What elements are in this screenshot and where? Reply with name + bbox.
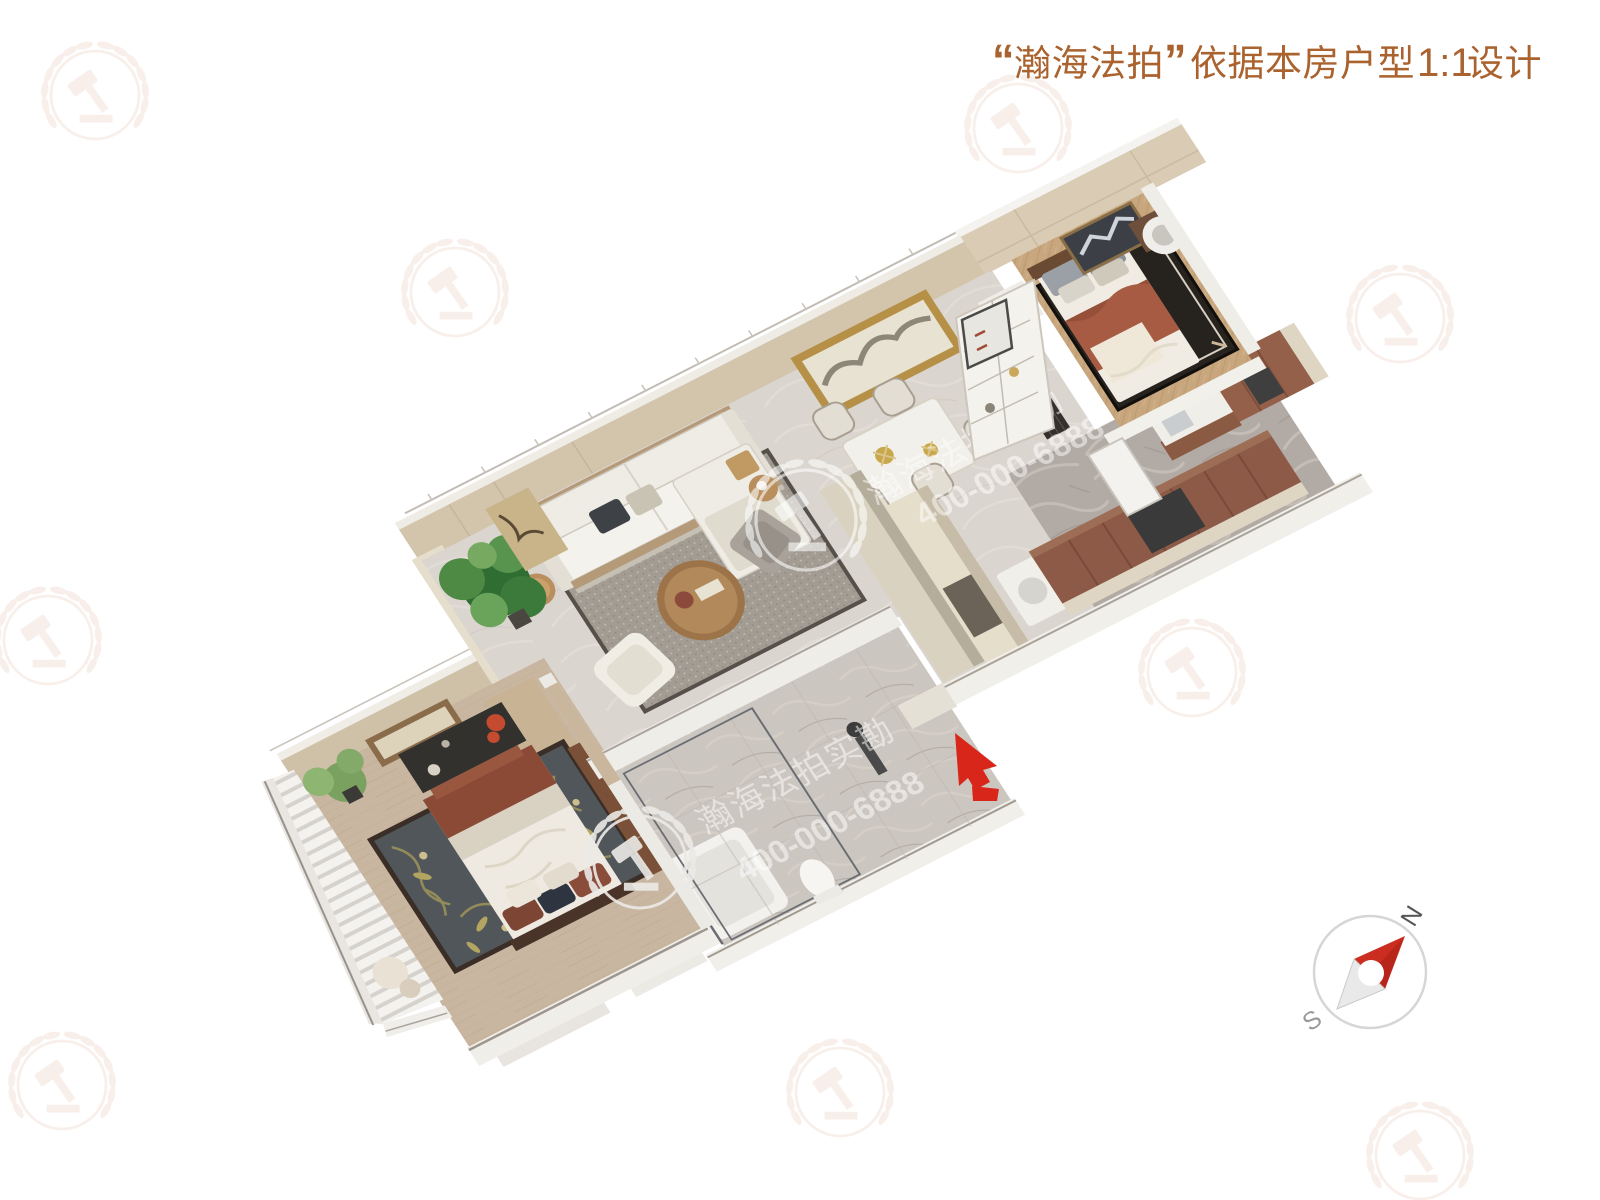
svg-text:”: ” [1164, 35, 1187, 86]
svg-text:“: “ [992, 35, 1015, 86]
svg-text:1:1: 1:1 [1417, 41, 1473, 85]
